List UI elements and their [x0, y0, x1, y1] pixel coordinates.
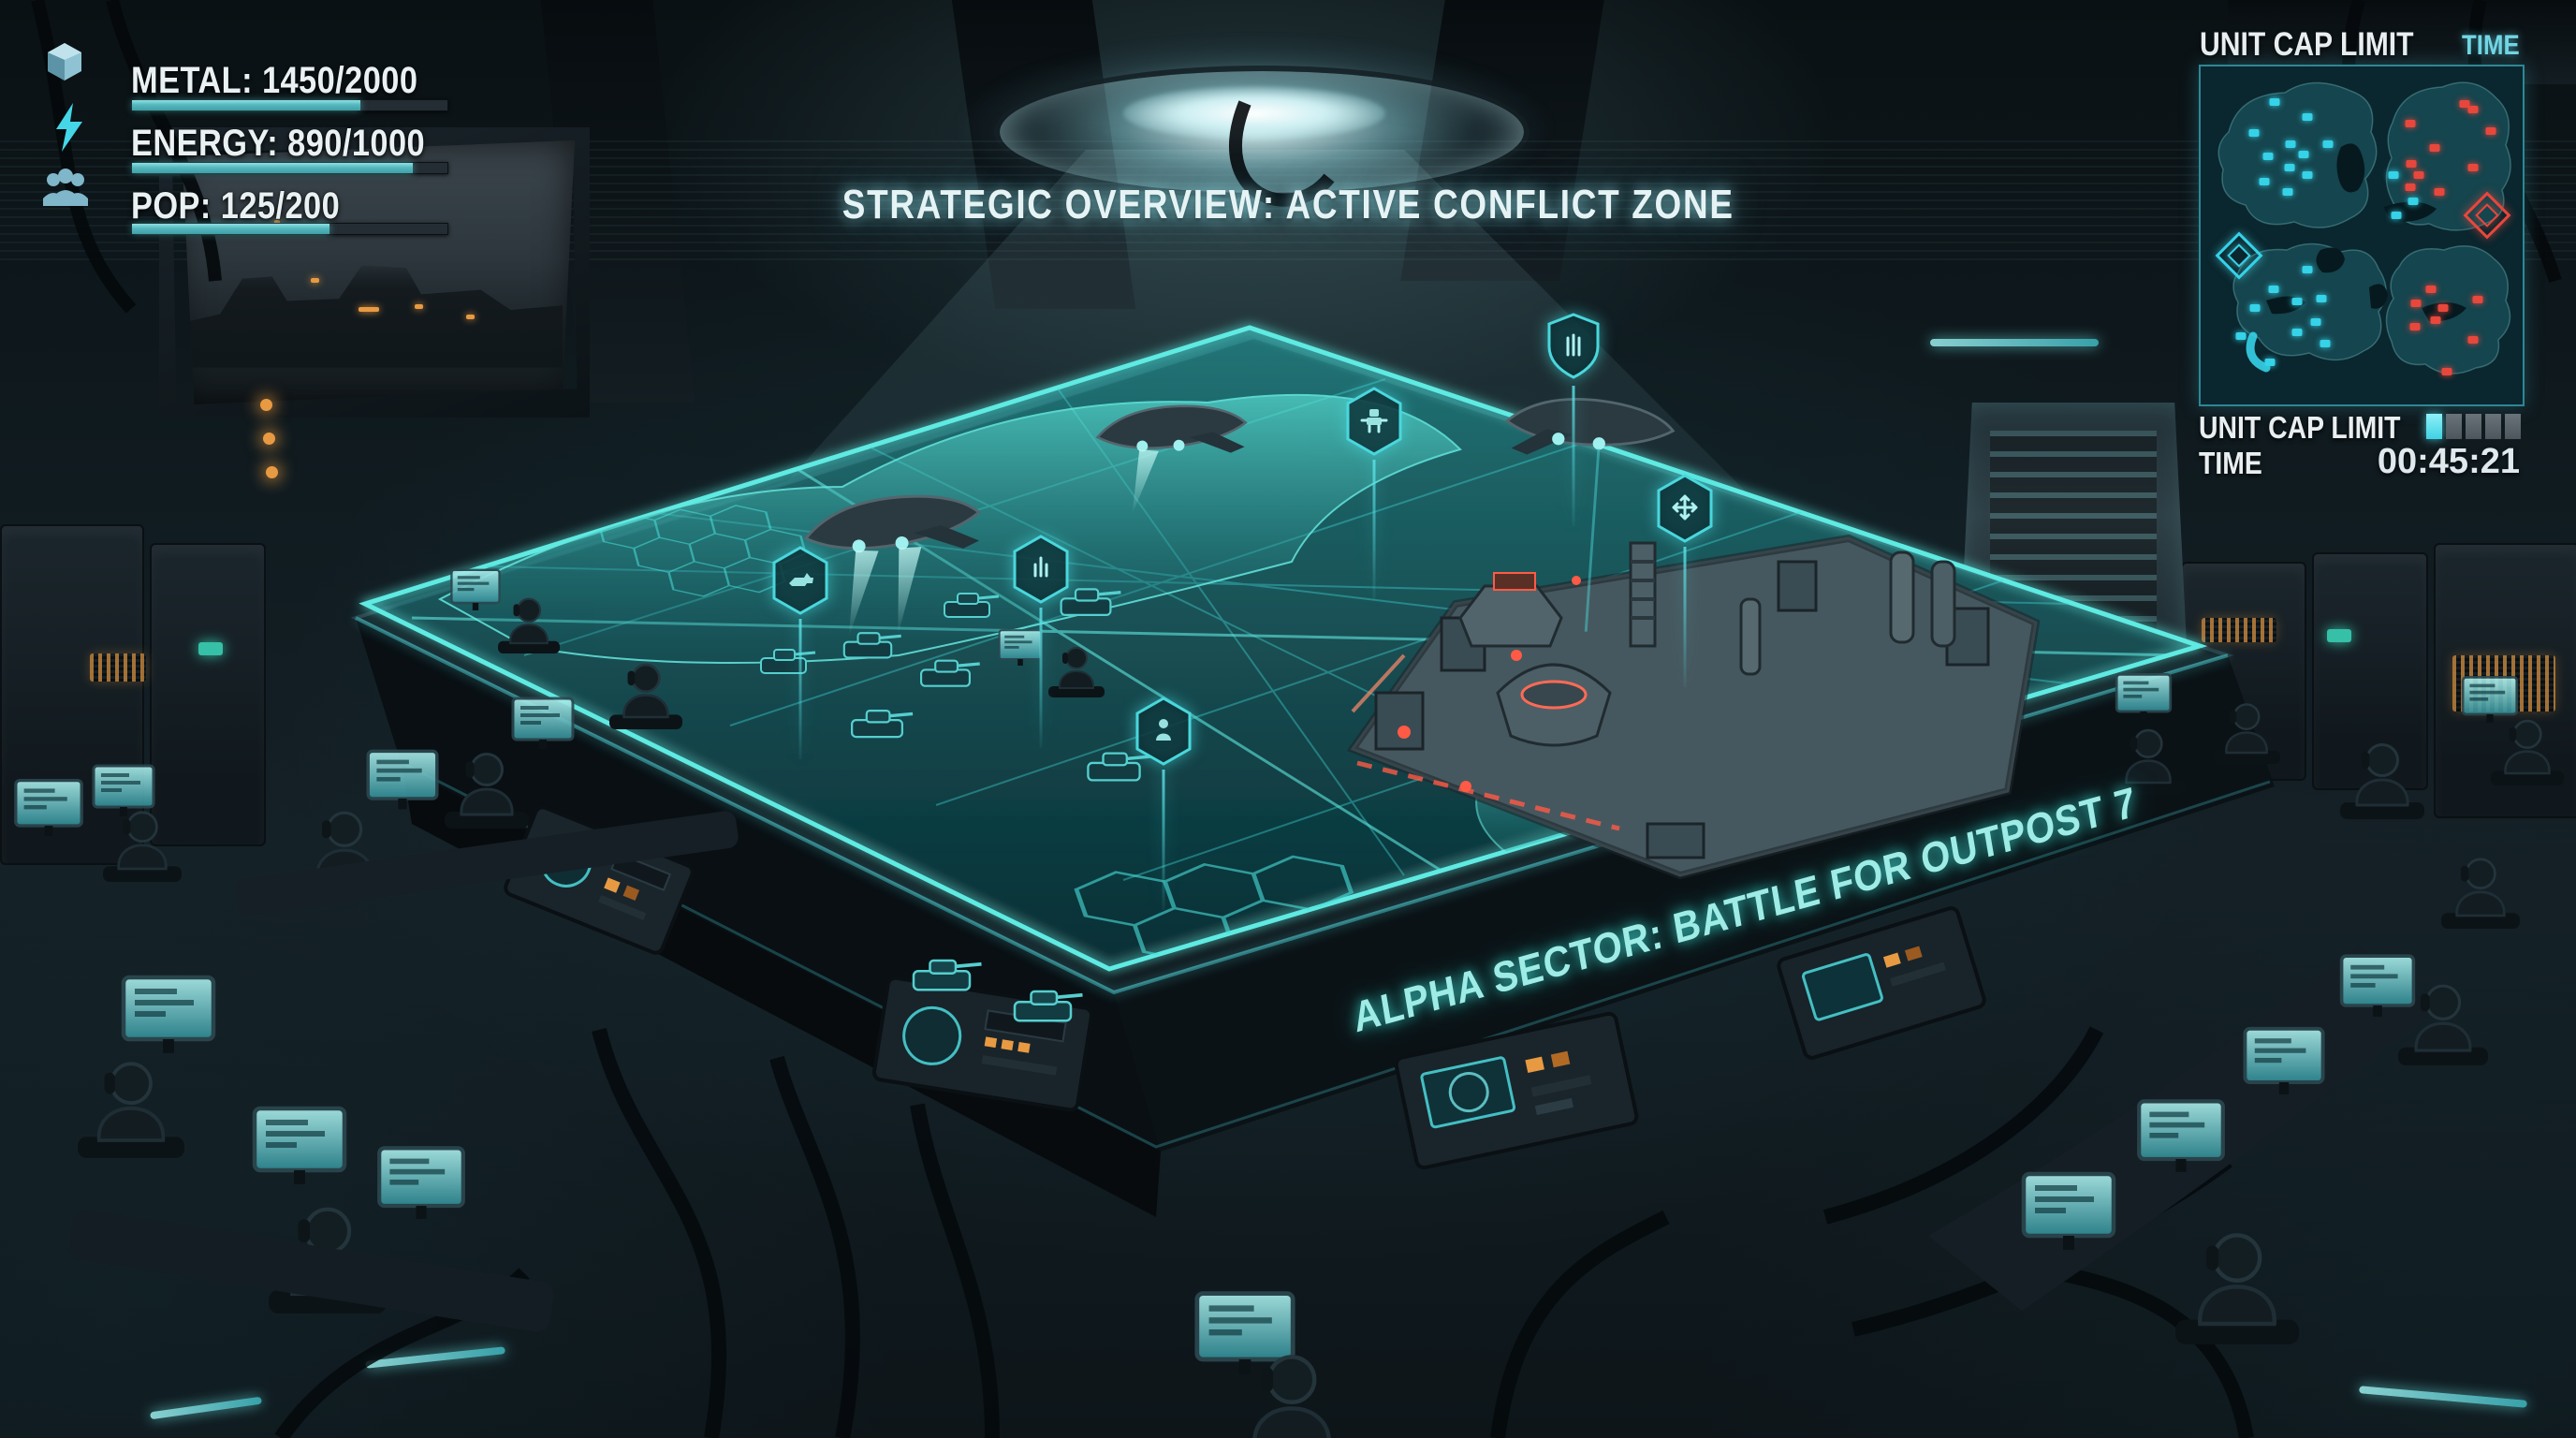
unit-cap-segment [2505, 414, 2521, 439]
minimap-blips [2201, 66, 2523, 404]
friendly-unit-blip [2286, 140, 2296, 148]
enemy-unit-blip [2468, 336, 2479, 344]
enemy-unit-blip [2411, 300, 2422, 307]
friendly-unit-blip [2302, 113, 2312, 121]
command-center-scene: ALPHA SECTOR: BATTLE FOR OUTPOST 7 METAL… [0, 0, 2576, 1438]
friendly-unit-blip [2270, 98, 2280, 106]
enemy-unit-blip [2472, 296, 2482, 303]
unit-cap-segments [2426, 414, 2521, 439]
enemy-unit-blip [2410, 323, 2421, 330]
friendly-unit-blip [2389, 171, 2399, 179]
minimap[interactable] [2199, 65, 2525, 406]
friendly-unit-blip [2269, 286, 2279, 293]
time-label: TIME [2199, 446, 2273, 481]
friendly-unit-blip [2264, 359, 2275, 366]
friendly-unit-blip [2292, 329, 2303, 336]
friendly-unit-blip [2302, 171, 2312, 179]
metal-counter: METAL: 1450/2000 [131, 60, 464, 102]
metal-bar-fill [132, 100, 360, 110]
enemy-unit-blip [2468, 106, 2479, 113]
enemy-unit-blip [2405, 183, 2415, 191]
friendly-unit-blip [2408, 198, 2419, 205]
enemy-unit-blip [2468, 164, 2479, 171]
energy-bar [131, 162, 448, 174]
friendly-unit-blip [2248, 129, 2259, 137]
unit-cap-segment [2426, 414, 2442, 439]
friendly-unit-blip [2249, 304, 2260, 312]
enemy-unit-blip [2430, 144, 2440, 152]
enemy-unit-blip [2405, 120, 2415, 127]
time-value: 00:45:21 [2303, 442, 2520, 482]
friendly-unit-blip [2320, 340, 2331, 347]
enemy-unit-blip [2425, 286, 2436, 293]
enemy-unit-blip [2438, 304, 2449, 312]
friendly-unit-blip [2392, 212, 2402, 219]
friendly-unit-blip [2263, 153, 2274, 160]
page-title: STRATEGIC OVERVIEW: ACTIVE CONFLICT ZONE [0, 182, 2576, 228]
enemy-unit-blip [2413, 171, 2423, 179]
friendly-unit-blip [2317, 295, 2327, 302]
metal-crate-icon [41, 37, 88, 86]
friendly-unit-blip [2302, 266, 2312, 273]
unit-cap-segment [2446, 414, 2462, 439]
friendly-unit-blip [2299, 151, 2309, 158]
friendly-unit-blip [2236, 332, 2247, 340]
friendly-unit-blip [2310, 318, 2320, 326]
friendly-unit-blip [2322, 140, 2333, 148]
enemy-unit-blip [2485, 127, 2495, 135]
friendly-unit-blip [2282, 188, 2292, 196]
enemy-unit-blip [2431, 316, 2441, 324]
minimap-header-time-label: TIME [2349, 30, 2520, 62]
unit-cap-label: UNIT CAP LIMIT [2199, 410, 2434, 446]
metal-bar [131, 99, 448, 111]
enemy-unit-blip [2406, 160, 2416, 168]
energy-bolt-icon [51, 101, 88, 154]
friendly-unit-blip [2260, 178, 2270, 185]
energy-bar-fill [132, 163, 413, 173]
unit-cap-segment [2485, 414, 2501, 439]
energy-counter: ENERGY: 890/1000 [131, 123, 473, 165]
friendly-unit-blip [2284, 164, 2294, 171]
unit-cap-segment [2466, 414, 2481, 439]
friendly-unit-blip [2292, 298, 2303, 305]
enemy-unit-blip [2442, 368, 2452, 375]
enemy-unit-blip [2434, 188, 2444, 196]
